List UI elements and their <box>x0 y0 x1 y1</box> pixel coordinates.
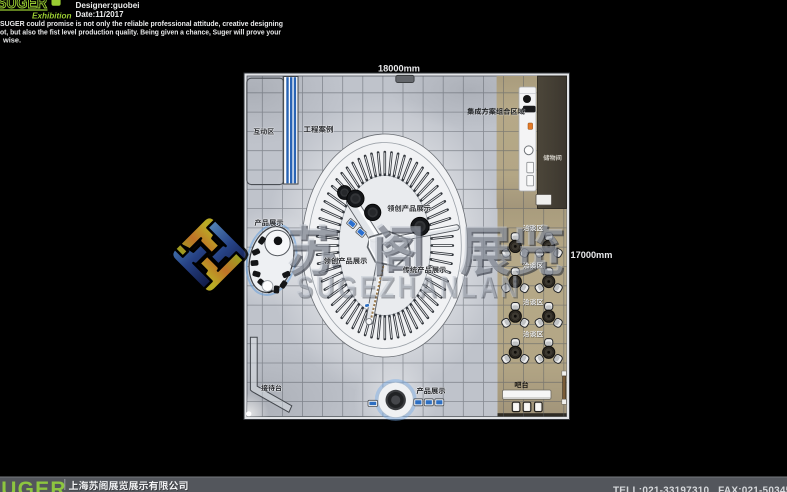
svg-text:18000mm: 18000mm <box>378 64 420 74</box>
svg-text:17000mm: 17000mm <box>571 250 613 260</box>
svg-text:wise.: wise. <box>2 36 21 45</box>
svg-text:SUGER could promise is not onl: SUGER could promise is not only the reli… <box>0 19 283 28</box>
svg-text:SUGER: SUGER <box>0 478 67 492</box>
svg-text:SUGEZHANLAN: SUGEZHANLAN <box>296 269 521 303</box>
svg-text:TELL:021-33197310 FAX:021-50: TELL:021-33197310 FAX:021-50345 <box>613 486 787 492</box>
svg-text:ot, but also the fist level pr: ot, but also the fist level production q… <box>0 28 281 37</box>
svg-text:Date:11/2017: Date:11/2017 <box>76 9 124 19</box>
